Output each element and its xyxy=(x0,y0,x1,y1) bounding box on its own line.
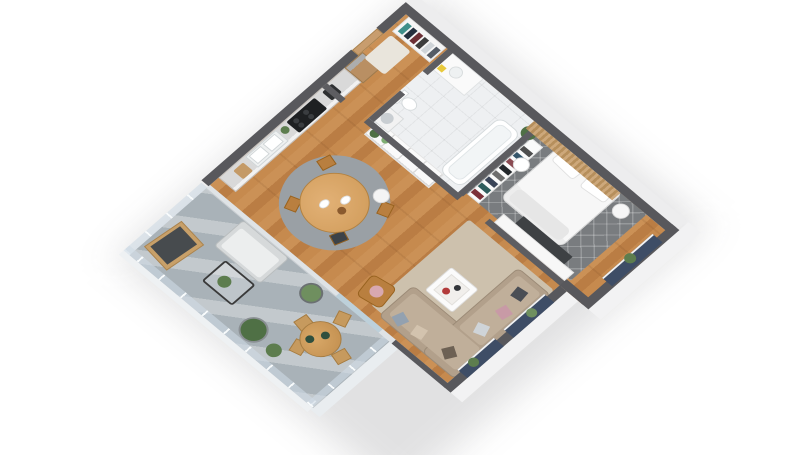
floorplan-canvas xyxy=(0,0,810,455)
